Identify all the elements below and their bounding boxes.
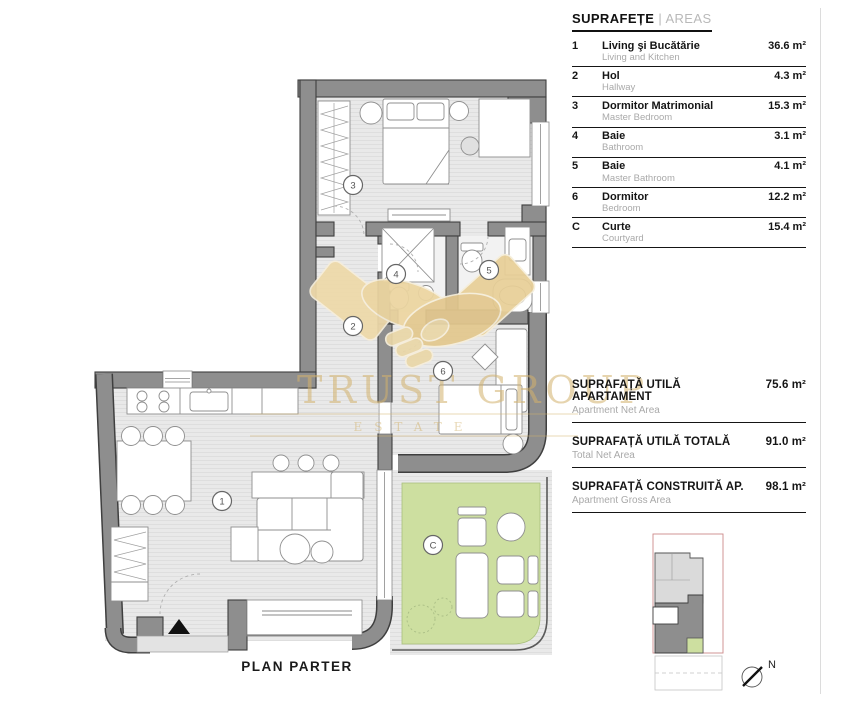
- room-name-en: Living and Kitchen: [602, 52, 806, 63]
- room-name: Dormitor: [602, 191, 766, 203]
- total-area: 91.0 m²: [766, 436, 806, 448]
- area-row: 3 Dormitor Matrimonial 15.3 m² Master Be…: [572, 97, 806, 127]
- total-row: SUPRAFAȚĂ UTILĂ APARTAMENT 75.6 m² Apart…: [572, 377, 806, 423]
- desk-chair: [461, 137, 479, 155]
- area-row: 6 Dormitor 12.2 m² Bedroom: [572, 188, 806, 218]
- total-area: 75.6 m²: [766, 379, 806, 391]
- courtyard: [390, 470, 552, 655]
- north-label: N: [768, 659, 776, 671]
- bar-stool: [273, 455, 289, 471]
- room-name: Hol: [602, 70, 772, 82]
- room-number: 4: [572, 130, 600, 154]
- area-totals: SUPRAFAȚĂ UTILĂ APARTAMENT 75.6 m² Apart…: [572, 377, 806, 524]
- room-number: 5: [572, 160, 600, 184]
- room-label-living: 1: [219, 497, 224, 508]
- room-area: 12.2 m²: [768, 191, 806, 203]
- room-name-en: Hallway: [602, 82, 806, 93]
- room-area: 15.4 m²: [768, 221, 806, 233]
- legend-rows: 1 Living şi Bucătărie 36.6 m² Living and…: [572, 37, 806, 248]
- total-name: SUPRAFAȚĂ UTILĂ APARTAMENT: [572, 379, 760, 403]
- area-row: 4 Baie 3.1 m² Bathroom: [572, 128, 806, 158]
- room-area: 36.6 m²: [768, 40, 806, 52]
- floor-plan-sheet: TRUST GROUP ESTATE 1 2 3 4 5 6 C PLAN PA…: [0, 0, 859, 720]
- dining-chair: [122, 427, 141, 446]
- room-name: Baie: [602, 160, 772, 172]
- pouf: [280, 534, 310, 564]
- room-name-en: Bedroom: [602, 203, 806, 214]
- sink: [190, 392, 228, 411]
- room-number: 6: [572, 191, 600, 215]
- room-name-en: Courtyard: [602, 233, 806, 244]
- room-name-en: Master Bedroom: [602, 112, 806, 123]
- total-row: SUPRAFAȚĂ UTILĂ TOTALĂ 91.0 m² Total Net…: [572, 434, 806, 468]
- north-arrow-icon: N: [742, 659, 776, 687]
- dining-table: [117, 441, 191, 501]
- site-minimap: [653, 534, 723, 690]
- area-row: 2 Hol 4.3 m² Hallway: [572, 67, 806, 97]
- room-area: 4.1 m²: [774, 160, 806, 172]
- total-name: SUPRAFAȚĂ CONSTRUITĂ AP.: [572, 481, 744, 493]
- room-name: Curte: [602, 221, 766, 233]
- room-number: C: [572, 221, 600, 245]
- area-row: 1 Living şi Bucătărie 36.6 m² Living and…: [572, 37, 806, 67]
- legend-header: SUPRAFEȚE | AREAS: [572, 11, 712, 32]
- room-area: 3.1 m²: [774, 130, 806, 142]
- legend-title-ro: SUPRAFEȚE: [572, 11, 654, 26]
- room-area: 4.3 m²: [774, 70, 806, 82]
- side-table: [231, 527, 258, 561]
- total-area: 98.1 m²: [766, 481, 806, 493]
- room-label-hall: 2: [350, 322, 355, 333]
- area-row: 5 Baie 4.1 m² Master Bathroom: [572, 158, 806, 188]
- total-name-en: Apartment Net Area: [572, 405, 806, 416]
- room-number: 3: [572, 100, 600, 124]
- total-name: SUPRAFAȚĂ UTILĂ TOTALĂ: [572, 436, 730, 448]
- room-label-master-bathroom: 5: [486, 266, 491, 277]
- nightstand: [360, 102, 382, 124]
- room-name: Dormitor Matrimonial: [602, 100, 766, 112]
- area-row: C Curte 15.4 m² Courtyard: [572, 218, 806, 248]
- cabinet: [111, 527, 148, 601]
- room-name: Baie: [602, 130, 772, 142]
- room-label-courtyard: C: [430, 541, 437, 552]
- room-label-bathroom: 4: [393, 270, 398, 281]
- room-number: 2: [572, 70, 600, 94]
- total-row: SUPRAFAȚĂ CONSTRUITĂ AP. 98.1 m² Apartme…: [572, 479, 806, 513]
- areas-legend: SUPRAFEȚE | AREAS 1 Living şi Bucătărie …: [572, 10, 806, 248]
- room-name-en: Master Bathroom: [602, 173, 806, 184]
- total-name-en: Apartment Gross Area: [572, 495, 806, 506]
- watermark-subtitle: ESTATE: [353, 420, 474, 434]
- room-label-master-bedroom: 3: [350, 181, 355, 192]
- room-name: Living şi Bucătărie: [602, 40, 766, 52]
- pouf: [311, 541, 333, 563]
- sheet-border-line: [820, 8, 821, 694]
- total-name-en: Total Net Area: [572, 450, 806, 461]
- room-label-bedroom: 6: [440, 367, 445, 378]
- nightstand: [450, 102, 469, 121]
- room-number: 1: [572, 40, 600, 64]
- pouf: [503, 434, 523, 454]
- desk: [479, 99, 530, 157]
- plan-title: PLAN PARTER: [241, 659, 353, 674]
- room-area: 15.3 m²: [768, 100, 806, 112]
- legend-title-en: AREAS: [665, 11, 711, 26]
- room-name-en: Bathroom: [602, 142, 806, 153]
